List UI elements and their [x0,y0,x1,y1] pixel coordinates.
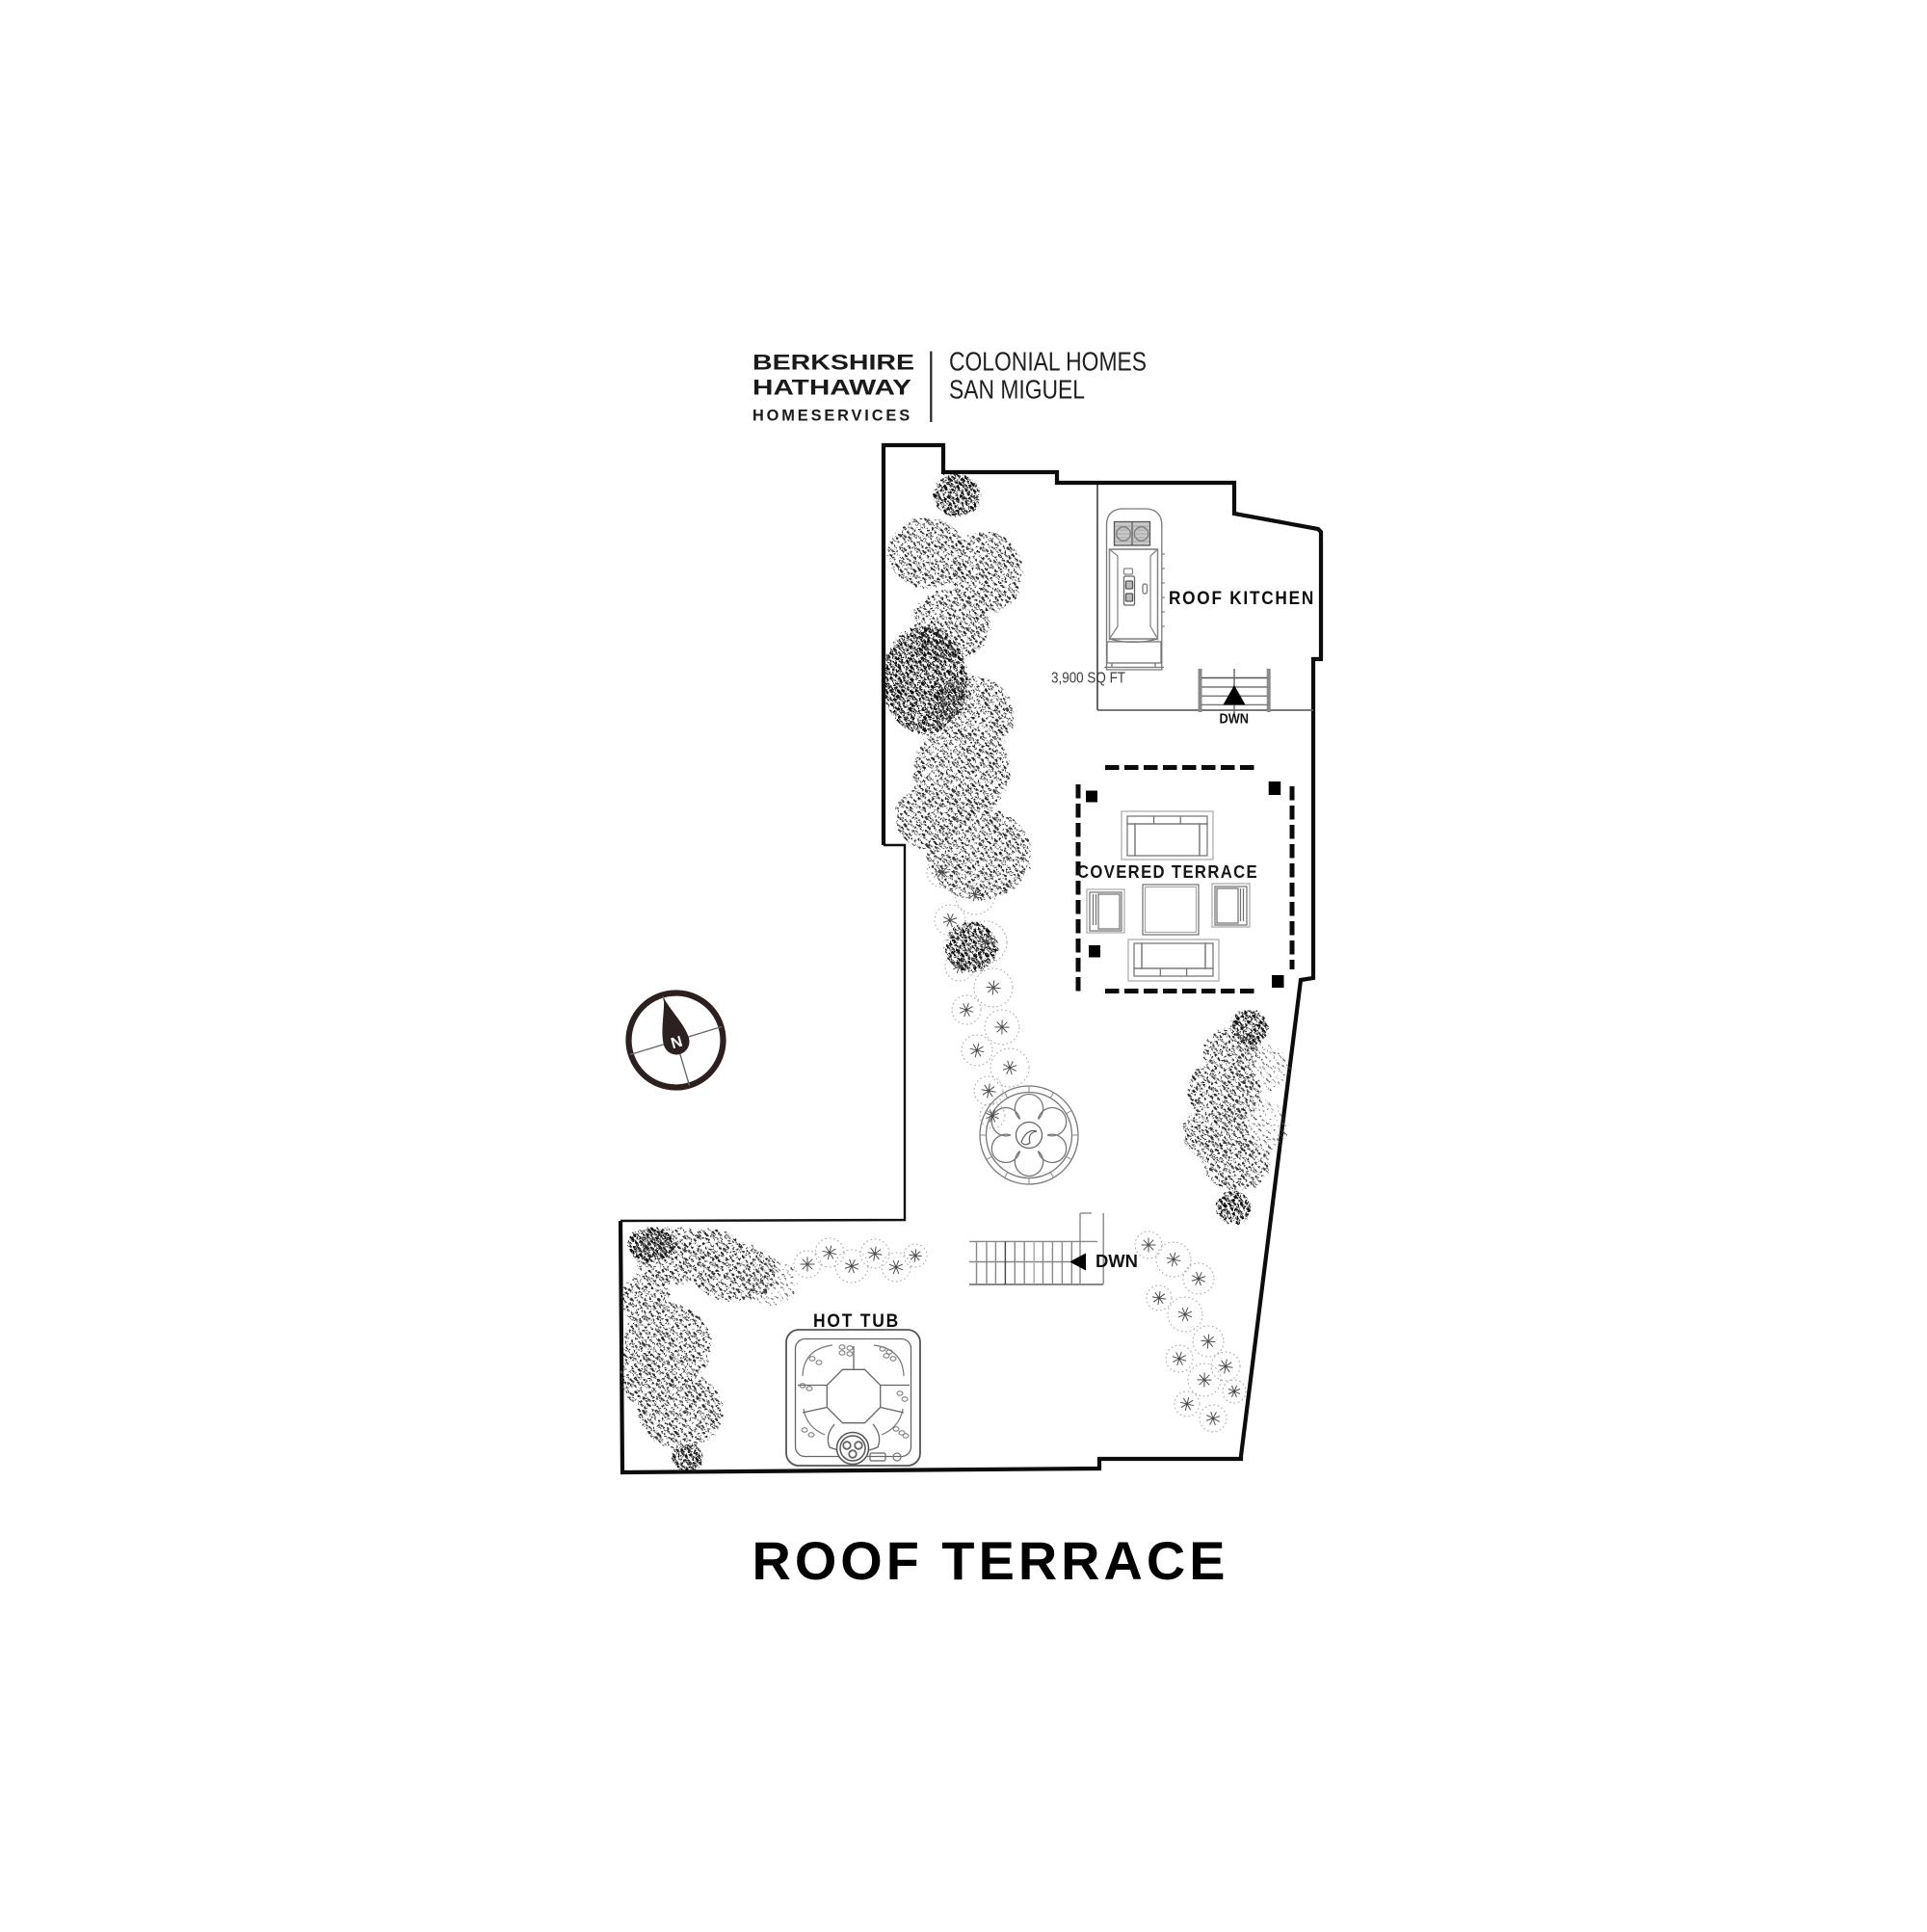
svg-text:ROOF TERRACE: ROOF TERRACE [752,1531,1229,1591]
svg-text:HATHAWAY: HATHAWAY [752,376,911,400]
svg-text:3,900 SQ FT: 3,900 SQ FT [1051,671,1125,687]
svg-text:HOMESERVICES: HOMESERVICES [752,407,912,425]
svg-text:COVERED TERRACE: COVERED TERRACE [1077,861,1258,882]
svg-text:DWN: DWN [1095,1252,1138,1271]
svg-text:ROOF KITCHEN: ROOF KITCHEN [1169,588,1315,609]
svg-text:BERKSHIRE: BERKSHIRE [752,350,914,374]
svg-text:HOT TUB: HOT TUB [813,1310,900,1332]
svg-text:COLONIAL HOMES: COLONIAL HOMES [949,347,1147,377]
svg-text:DWN: DWN [1220,712,1250,728]
svg-text:SAN MIGUEL: SAN MIGUEL [949,374,1085,404]
